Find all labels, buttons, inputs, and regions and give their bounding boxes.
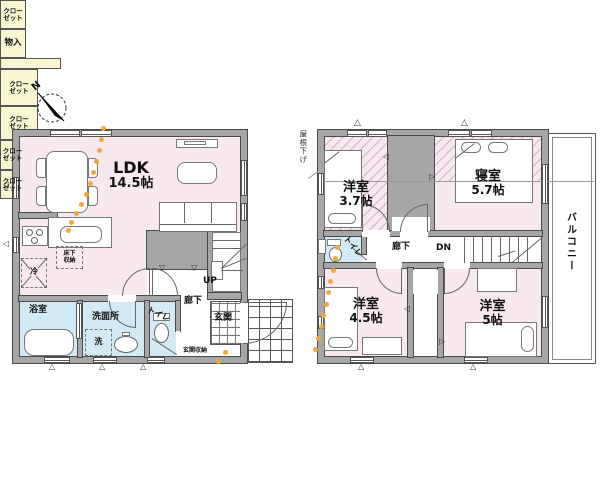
- room-sw-label: 洋室 4.5帖: [324, 294, 408, 328]
- ldk-size: 14.5帖: [108, 177, 153, 191]
- pillow: [488, 142, 508, 153]
- stair-tread: [500, 236, 501, 263]
- flow-dot: [331, 268, 336, 273]
- closet-label-line2: ゼット: [3, 15, 23, 22]
- ldk-name: LDK: [113, 160, 149, 177]
- stair-tread: [482, 236, 483, 263]
- flow-dot: [223, 350, 228, 355]
- flow-dot: [99, 137, 104, 142]
- compass-icon: N: [24, 76, 84, 138]
- stair-tread: [473, 236, 474, 263]
- window: [347, 130, 367, 137]
- flow-dot: [79, 202, 84, 207]
- stairs-dn-label: DN: [436, 244, 451, 253]
- flow-dot: [328, 279, 333, 284]
- room-sw-size: 4.5帖: [349, 312, 382, 325]
- window-marker: △: [49, 363, 55, 371]
- wall: [19, 296, 180, 301]
- wall: [208, 293, 241, 299]
- bathroom-label: 浴室: [29, 306, 47, 315]
- bathtub: [24, 329, 74, 356]
- flow-dot: [94, 159, 99, 164]
- window: [81, 130, 112, 137]
- roof-lowering-label: 屋根下げ: [299, 130, 307, 164]
- burner: [36, 229, 43, 236]
- sofa: [159, 202, 237, 232]
- sofa-seat-edge: [160, 224, 236, 225]
- window-marker: △: [99, 363, 105, 371]
- closet-label-line2: ゼット: [3, 155, 23, 162]
- flow-dot: [321, 313, 326, 318]
- balcony-window: [542, 164, 548, 204]
- washbasin-tap: [122, 332, 130, 336]
- desk: [477, 268, 517, 292]
- tv: [184, 141, 206, 145]
- flow-dot: [91, 170, 96, 175]
- entrance-label: 玄関: [214, 314, 232, 323]
- room-se-name: 洋室: [479, 300, 505, 314]
- window-marker: △: [470, 363, 476, 371]
- flow-dot: [101, 126, 106, 131]
- washbasin: [114, 336, 138, 353]
- flow-dot: [324, 302, 329, 307]
- bathroom-sliding-door: [76, 303, 82, 339]
- room-nw-label: 洋室 3.7帖: [324, 178, 388, 210]
- floor1-entrance-storage: [0, 58, 61, 69]
- hallway2-label: 廊下: [392, 243, 410, 252]
- room-nw-name: 洋室: [343, 181, 369, 195]
- stair-tread: [212, 248, 241, 249]
- flow-dot: [313, 347, 318, 352]
- closet-nook: [413, 270, 438, 294]
- flow-dot: [66, 228, 71, 233]
- flow-dot: [333, 256, 338, 261]
- pillow: [328, 337, 353, 348]
- compass-north-label: N: [30, 79, 43, 93]
- door-opening: [176, 331, 180, 355]
- floor1-closet: クロー ゼット: [0, 0, 26, 29]
- stair-tread: [509, 236, 510, 263]
- window: [318, 276, 324, 289]
- balcony-label: バルコニー: [564, 212, 575, 272]
- burner: [31, 237, 38, 244]
- closet-label-line2: ゼット: [9, 123, 29, 130]
- flow-dot: [319, 324, 324, 329]
- window: [368, 130, 387, 137]
- bedroom-name: 寝室: [475, 170, 501, 184]
- stair-tread: [518, 236, 519, 263]
- closet-label-line2: ゼット: [9, 88, 29, 95]
- window: [13, 237, 19, 253]
- hallway-label: 廊下: [184, 297, 202, 306]
- stair-tread: [464, 236, 465, 263]
- wall: [147, 231, 212, 269]
- bedroom-label: 寝室 5.7帖: [434, 166, 542, 200]
- fridge-label: 冷: [30, 268, 38, 276]
- window: [448, 130, 470, 137]
- burner: [26, 229, 33, 236]
- room-se-size: 5帖: [482, 314, 502, 327]
- desk: [362, 337, 402, 355]
- underfloor-label-line2: 収納: [63, 258, 75, 264]
- wall-basin: [318, 239, 326, 254]
- window-marker: △: [354, 119, 361, 128]
- window-marker: △: [461, 119, 468, 128]
- roof-lowering-tick: [308, 171, 318, 179]
- stair-tread: [221, 270, 243, 271]
- floor1-storage-monoire: 物入: [0, 29, 26, 58]
- window: [44, 357, 70, 363]
- flow-dot: [316, 336, 321, 341]
- window: [471, 130, 492, 137]
- flow-dot: [88, 181, 93, 186]
- chair: [36, 158, 46, 178]
- closet-door-marker: ▽: [159, 264, 165, 272]
- underfloor-storage: 床下 収納: [56, 246, 83, 269]
- chair: [36, 186, 46, 206]
- flow-dot: [74, 211, 79, 216]
- sofa-divider: [211, 203, 212, 223]
- window: [241, 203, 247, 221]
- closet-door-marker: ▽: [191, 264, 197, 272]
- wall: [176, 301, 180, 331]
- flow-dot: [84, 192, 89, 197]
- room-sw-name: 洋室: [353, 298, 379, 312]
- closet-door-marker: ▷: [439, 338, 445, 346]
- stair-tread: [491, 236, 492, 263]
- pillow: [328, 213, 356, 224]
- balcony-window: [542, 296, 548, 328]
- window-marker: △: [140, 363, 146, 371]
- room-se-label: 洋室 5帖: [443, 296, 542, 330]
- stair-tread: [212, 240, 241, 241]
- sofa-divider: [184, 203, 185, 223]
- flow-dot: [216, 359, 221, 364]
- stairs-up-label: UP: [203, 277, 217, 286]
- washer-space: 洗: [85, 329, 112, 356]
- closet-label-line2: ゼット: [3, 185, 23, 192]
- ldk-label: LDK 14.5帖: [76, 154, 186, 196]
- flow-dot: [97, 148, 102, 153]
- window: [147, 357, 165, 363]
- washer-label: 洗: [95, 338, 103, 346]
- window: [241, 160, 247, 196]
- washroom-label: 洗面所: [92, 313, 119, 322]
- storage-label: 物入: [4, 39, 21, 48]
- entrance-storage-label: 玄関収納: [183, 348, 207, 354]
- room-nw-size: 3.7帖: [339, 195, 372, 208]
- window-marker: ◁: [3, 240, 9, 248]
- closet-door-marker: ◁: [383, 153, 389, 161]
- flow-dot: [69, 220, 74, 225]
- flow-dot: [326, 290, 331, 295]
- flow-dot: [335, 245, 340, 250]
- window-marker: △: [358, 363, 364, 371]
- bedroom-size: 5.7帖: [471, 184, 504, 197]
- floor-plan-canvas: N N クロー ゼット 物入 ▽ ▽ 玄関収納 UP: [0, 0, 600, 502]
